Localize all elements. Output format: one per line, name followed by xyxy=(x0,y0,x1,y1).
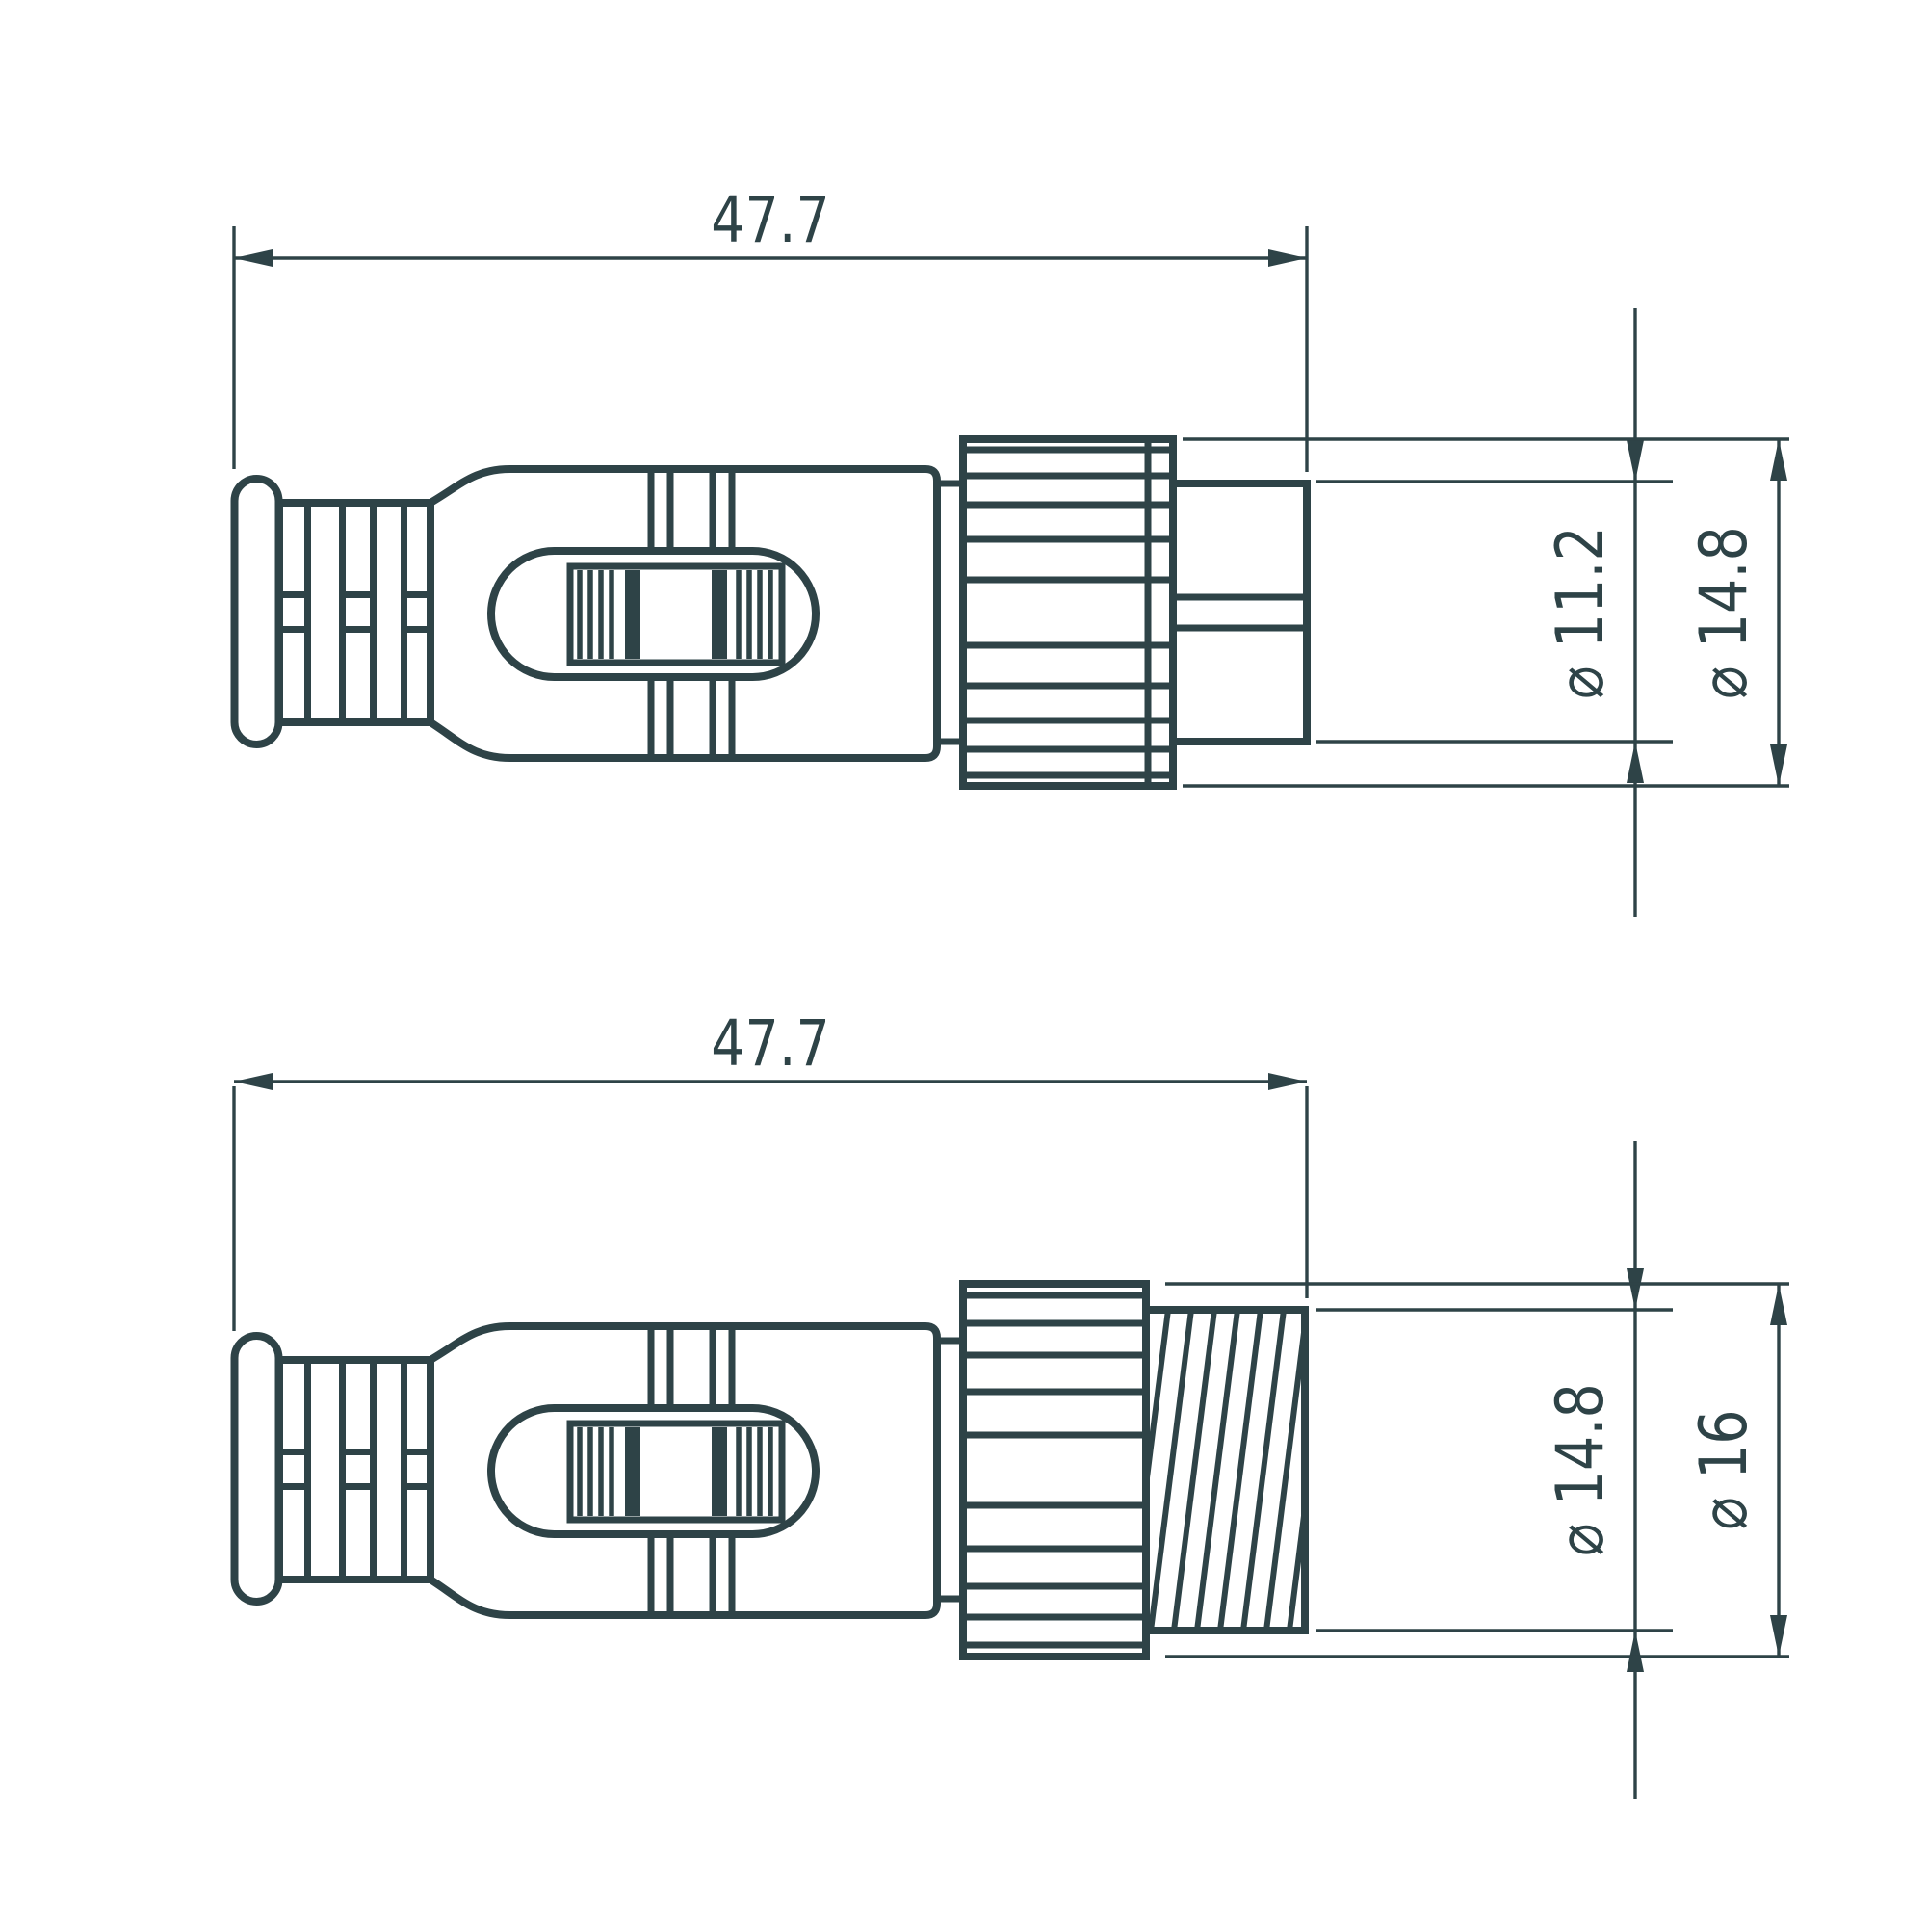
view-top-male-connector: 47.7 xyxy=(234,183,1789,917)
arrowhead-down-icon xyxy=(1627,440,1644,482)
latch-outline xyxy=(491,551,816,677)
view-bottom-threaded-connector: 47.7 xyxy=(234,1006,1789,1799)
nut-diameter-value-bottom: ⌀ 16 xyxy=(1685,1409,1761,1529)
knurled-coupling-nut xyxy=(963,1284,1146,1657)
arrowhead-up-icon xyxy=(1627,742,1644,783)
arrowhead-up-icon xyxy=(1770,439,1787,481)
barrel-diameter-value: ⌀ 11.2 xyxy=(1542,526,1618,699)
dimension-thread-diameter-bottom: ⌀ 14.8 xyxy=(1316,1141,1673,1799)
arrowhead-left-icon xyxy=(234,249,273,267)
cable-boot-cap xyxy=(235,479,279,744)
connector-body xyxy=(430,469,937,758)
latch-lever xyxy=(491,551,816,677)
arrowhead-left-icon xyxy=(234,1073,273,1090)
arrowhead-right-icon xyxy=(1268,1073,1307,1090)
connector-dimension-drawing: 47.7 xyxy=(0,0,1927,1927)
connector-body xyxy=(430,1326,937,1615)
arrowhead-up-icon xyxy=(1627,1631,1644,1672)
cable-boot-cap xyxy=(235,1336,279,1602)
arrowhead-right-icon xyxy=(1268,249,1307,267)
arrowhead-up-icon xyxy=(1770,1284,1787,1325)
length-value-top: 47.7 xyxy=(711,183,829,257)
technical-drawing-page: 47.7 xyxy=(0,0,1927,1927)
arrowhead-down-icon xyxy=(1770,1615,1787,1657)
latch-outline xyxy=(491,1408,816,1534)
length-value-bottom: 47.7 xyxy=(711,1006,829,1081)
arrowhead-down-icon xyxy=(1770,744,1787,786)
rib-frame xyxy=(279,503,430,722)
nut-diameter-value-top: ⌀ 14.8 xyxy=(1685,526,1761,699)
dimension-length-top: 47.7 xyxy=(234,183,1307,472)
dimension-nut-diameter-top: ⌀ 14.8 xyxy=(1183,439,1789,786)
dimension-barrel-diameter-top: ⌀ 11.2 xyxy=(1316,308,1673,917)
thread-diameter-value: ⌀ 14.8 xyxy=(1542,1383,1618,1556)
strain-relief-ribs xyxy=(279,503,430,722)
latch-lever xyxy=(491,1408,816,1534)
arrowhead-down-icon xyxy=(1627,1268,1644,1310)
male-barrel xyxy=(1173,483,1307,742)
knurled-nut xyxy=(963,439,1173,786)
strain-relief-ribs xyxy=(279,1360,430,1580)
